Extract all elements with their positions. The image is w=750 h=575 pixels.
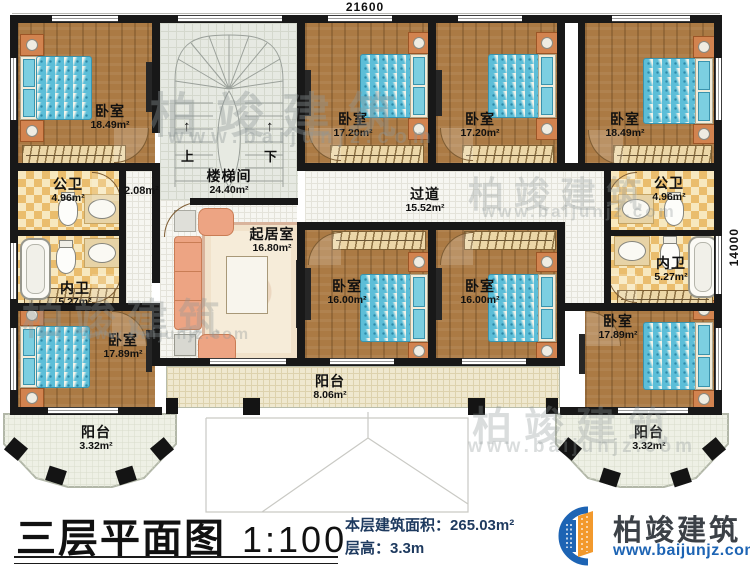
- bed-headboard: [410, 274, 428, 342]
- wall: [152, 163, 160, 283]
- room-name: 公卫: [32, 177, 104, 193]
- bed-headboard: [538, 274, 556, 342]
- nightstand: [20, 388, 44, 408]
- stairs-down-label: 下: [264, 146, 277, 165]
- wall: [604, 170, 611, 309]
- nightstand: [408, 32, 430, 54]
- bed: [36, 326, 90, 388]
- tv: [305, 70, 311, 116]
- label-corridor: 过道 15.52m²: [389, 187, 461, 214]
- window: [715, 58, 722, 120]
- label-bath-private-right: 内卫 5.27m²: [635, 256, 707, 283]
- label-bedroom-bm2: 卧室 16.00m²: [444, 279, 516, 306]
- wardrobe: [22, 145, 126, 165]
- label-living: 起居室 16.80m²: [234, 227, 310, 254]
- window: [330, 358, 394, 365]
- floor-height-value: 3.3m: [390, 540, 424, 557]
- room-name: 公卫: [633, 176, 705, 192]
- wall: [10, 230, 122, 236]
- room-name: 阳台: [613, 425, 685, 441]
- room-name: 卧室: [311, 279, 383, 295]
- floor-area-value: 265.03m²: [450, 517, 514, 534]
- pillar: [546, 398, 558, 414]
- room-area: 5.27m²: [635, 272, 707, 284]
- plan-scale: 1:100: [242, 519, 347, 560]
- wardrobe: [464, 231, 556, 250]
- floor-height-row: 层高：3.3m: [345, 537, 514, 560]
- window: [462, 358, 526, 365]
- label-bedroom-tm2: 卧室 17.20m²: [442, 112, 518, 139]
- room-name: 楼梯间: [191, 169, 267, 185]
- label-bedroom-bm1: 卧室 16.00m²: [311, 279, 383, 306]
- room-name: 卧室: [87, 333, 159, 349]
- window: [612, 15, 690, 22]
- bed-headboard: [410, 54, 428, 118]
- room-area: 15.52m²: [389, 203, 461, 215]
- toilet: [56, 244, 76, 274]
- window: [618, 407, 688, 414]
- nightstand: [693, 36, 715, 58]
- window: [458, 15, 522, 22]
- window: [10, 243, 17, 299]
- wardrobe: [332, 231, 426, 250]
- room-name: 起居室: [234, 227, 310, 243]
- room-area: 16.00m²: [444, 295, 516, 307]
- nightstand: [536, 32, 558, 54]
- room-name: 内卫: [39, 281, 111, 297]
- bed-headboard: [538, 54, 556, 118]
- floor-area-label: 本层建筑面积：: [345, 517, 450, 534]
- plan-title-text: 三层平面图: [16, 517, 226, 561]
- label-bath-public-left: 公卫 4.96m²: [32, 177, 104, 204]
- room-name: 卧室: [444, 279, 516, 295]
- wall: [297, 15, 305, 171]
- label-bedroom-tl: 卧室 18.49m²: [72, 104, 148, 131]
- nightstand: [536, 118, 558, 140]
- room-area: 18.49m²: [72, 120, 148, 132]
- nightstand: [693, 390, 715, 408]
- window: [52, 15, 118, 22]
- pillar: [468, 398, 485, 415]
- room-hall-right: [565, 171, 604, 303]
- wardrobe: [330, 145, 424, 165]
- room-area: 17.89m²: [87, 349, 159, 361]
- sofa: [174, 236, 202, 330]
- room-area: 5.27m²: [39, 297, 111, 309]
- bed: [360, 54, 412, 118]
- floor-height-label: 层高：: [345, 540, 390, 557]
- nightstand: [408, 118, 430, 140]
- nightstand: [408, 252, 430, 272]
- room-name: 过道: [389, 187, 461, 203]
- wall: [10, 163, 158, 171]
- pillar: [243, 398, 260, 415]
- label-bath-private-left: 内卫 5.27m²: [39, 281, 111, 308]
- tv: [436, 268, 442, 320]
- room-area: 3.32m²: [613, 441, 685, 453]
- label-balcony-left: 阳台 3.32m²: [60, 425, 132, 452]
- balcony-door: [210, 358, 286, 365]
- wall: [190, 198, 298, 205]
- room-area: 8.06m²: [294, 390, 366, 402]
- window: [10, 58, 17, 120]
- room-name: 卧室: [442, 112, 518, 128]
- wardrobe: [613, 145, 712, 165]
- label-hall-small: 2.08m²: [124, 185, 159, 197]
- wall: [565, 163, 722, 171]
- room-area: 17.20m²: [315, 128, 391, 140]
- window: [178, 15, 282, 22]
- room-name: 内卫: [635, 256, 707, 272]
- room-name: 卧室: [72, 104, 148, 120]
- label-balcony-right: 阳台 3.32m²: [613, 425, 685, 452]
- stairs-up-arrow: ↑: [183, 118, 191, 135]
- brand-website: www.baijunjz.com: [613, 542, 750, 560]
- floorplan-canvas: 卧室 18.49m² 楼梯间 24.40m² 卧室 17.20m² 卧室 17.…: [0, 0, 750, 575]
- window: [10, 328, 17, 390]
- nightstand: [20, 34, 44, 56]
- wall: [578, 15, 585, 171]
- label-bedroom-tr: 卧室 18.49m²: [585, 112, 665, 139]
- label-bedroom-br: 卧室 17.89m²: [582, 314, 654, 341]
- room-area: 3.32m²: [60, 441, 132, 453]
- coffee-table: [226, 256, 268, 314]
- dimension-height: 14000: [727, 228, 741, 266]
- room-area: 18.49m²: [585, 128, 665, 140]
- room-area: 16.00m²: [311, 295, 383, 307]
- window: [715, 328, 722, 390]
- armchair: [198, 208, 234, 236]
- window: [328, 15, 392, 22]
- window: [715, 236, 722, 294]
- room-area: 17.89m²: [582, 330, 654, 342]
- nightstand: [693, 124, 715, 144]
- room-area: 16.80m²: [234, 243, 310, 255]
- title-underline: [14, 556, 338, 564]
- wardrobe: [462, 145, 554, 165]
- label-balcony-center: 阳台 8.06m²: [294, 374, 366, 401]
- window: [48, 407, 118, 414]
- bed-headboard: [695, 58, 713, 124]
- nightstand: [536, 252, 558, 272]
- wall: [557, 222, 565, 366]
- wall: [152, 15, 160, 133]
- sink: [88, 243, 116, 263]
- bed-headboard: [695, 322, 713, 390]
- pillar: [166, 398, 178, 414]
- wall: [428, 222, 436, 366]
- dimension-width: 21600: [330, 0, 400, 14]
- stairs-up-label: 上: [181, 146, 194, 165]
- label-bath-public-right: 公卫 4.96m²: [633, 176, 705, 203]
- nightstand: [20, 120, 44, 142]
- tv: [436, 70, 442, 116]
- label-stairwell: 楼梯间 24.40m²: [191, 169, 267, 196]
- wall: [565, 303, 722, 311]
- label-bedroom-bl: 卧室 17.89m²: [87, 333, 159, 360]
- wall: [428, 15, 436, 171]
- side-table: [174, 334, 196, 356]
- wall: [610, 230, 722, 236]
- room-name: 阳台: [60, 425, 132, 441]
- room-name: 卧室: [315, 112, 391, 128]
- roof-outline: [200, 412, 475, 517]
- floor-area-row: 本层建筑面积：265.03m²: [345, 514, 514, 537]
- room-area: 4.96m²: [633, 192, 705, 204]
- bed: [488, 54, 540, 118]
- room-name: 卧室: [582, 314, 654, 330]
- room-area: 17.20m²: [442, 128, 518, 140]
- room-area: 4.96m²: [32, 193, 104, 205]
- room-name: 阳台: [294, 374, 366, 390]
- wall: [557, 15, 565, 171]
- brand-logo-icon: [548, 502, 610, 568]
- room-name: 卧室: [585, 112, 665, 128]
- label-bedroom-tm1: 卧室 17.20m²: [315, 112, 391, 139]
- floor-info: 本层建筑面积：265.03m² 层高：3.3m: [345, 514, 514, 561]
- stairs-down-arrow: ↑: [266, 118, 274, 135]
- room-area: 24.40m²: [191, 185, 267, 197]
